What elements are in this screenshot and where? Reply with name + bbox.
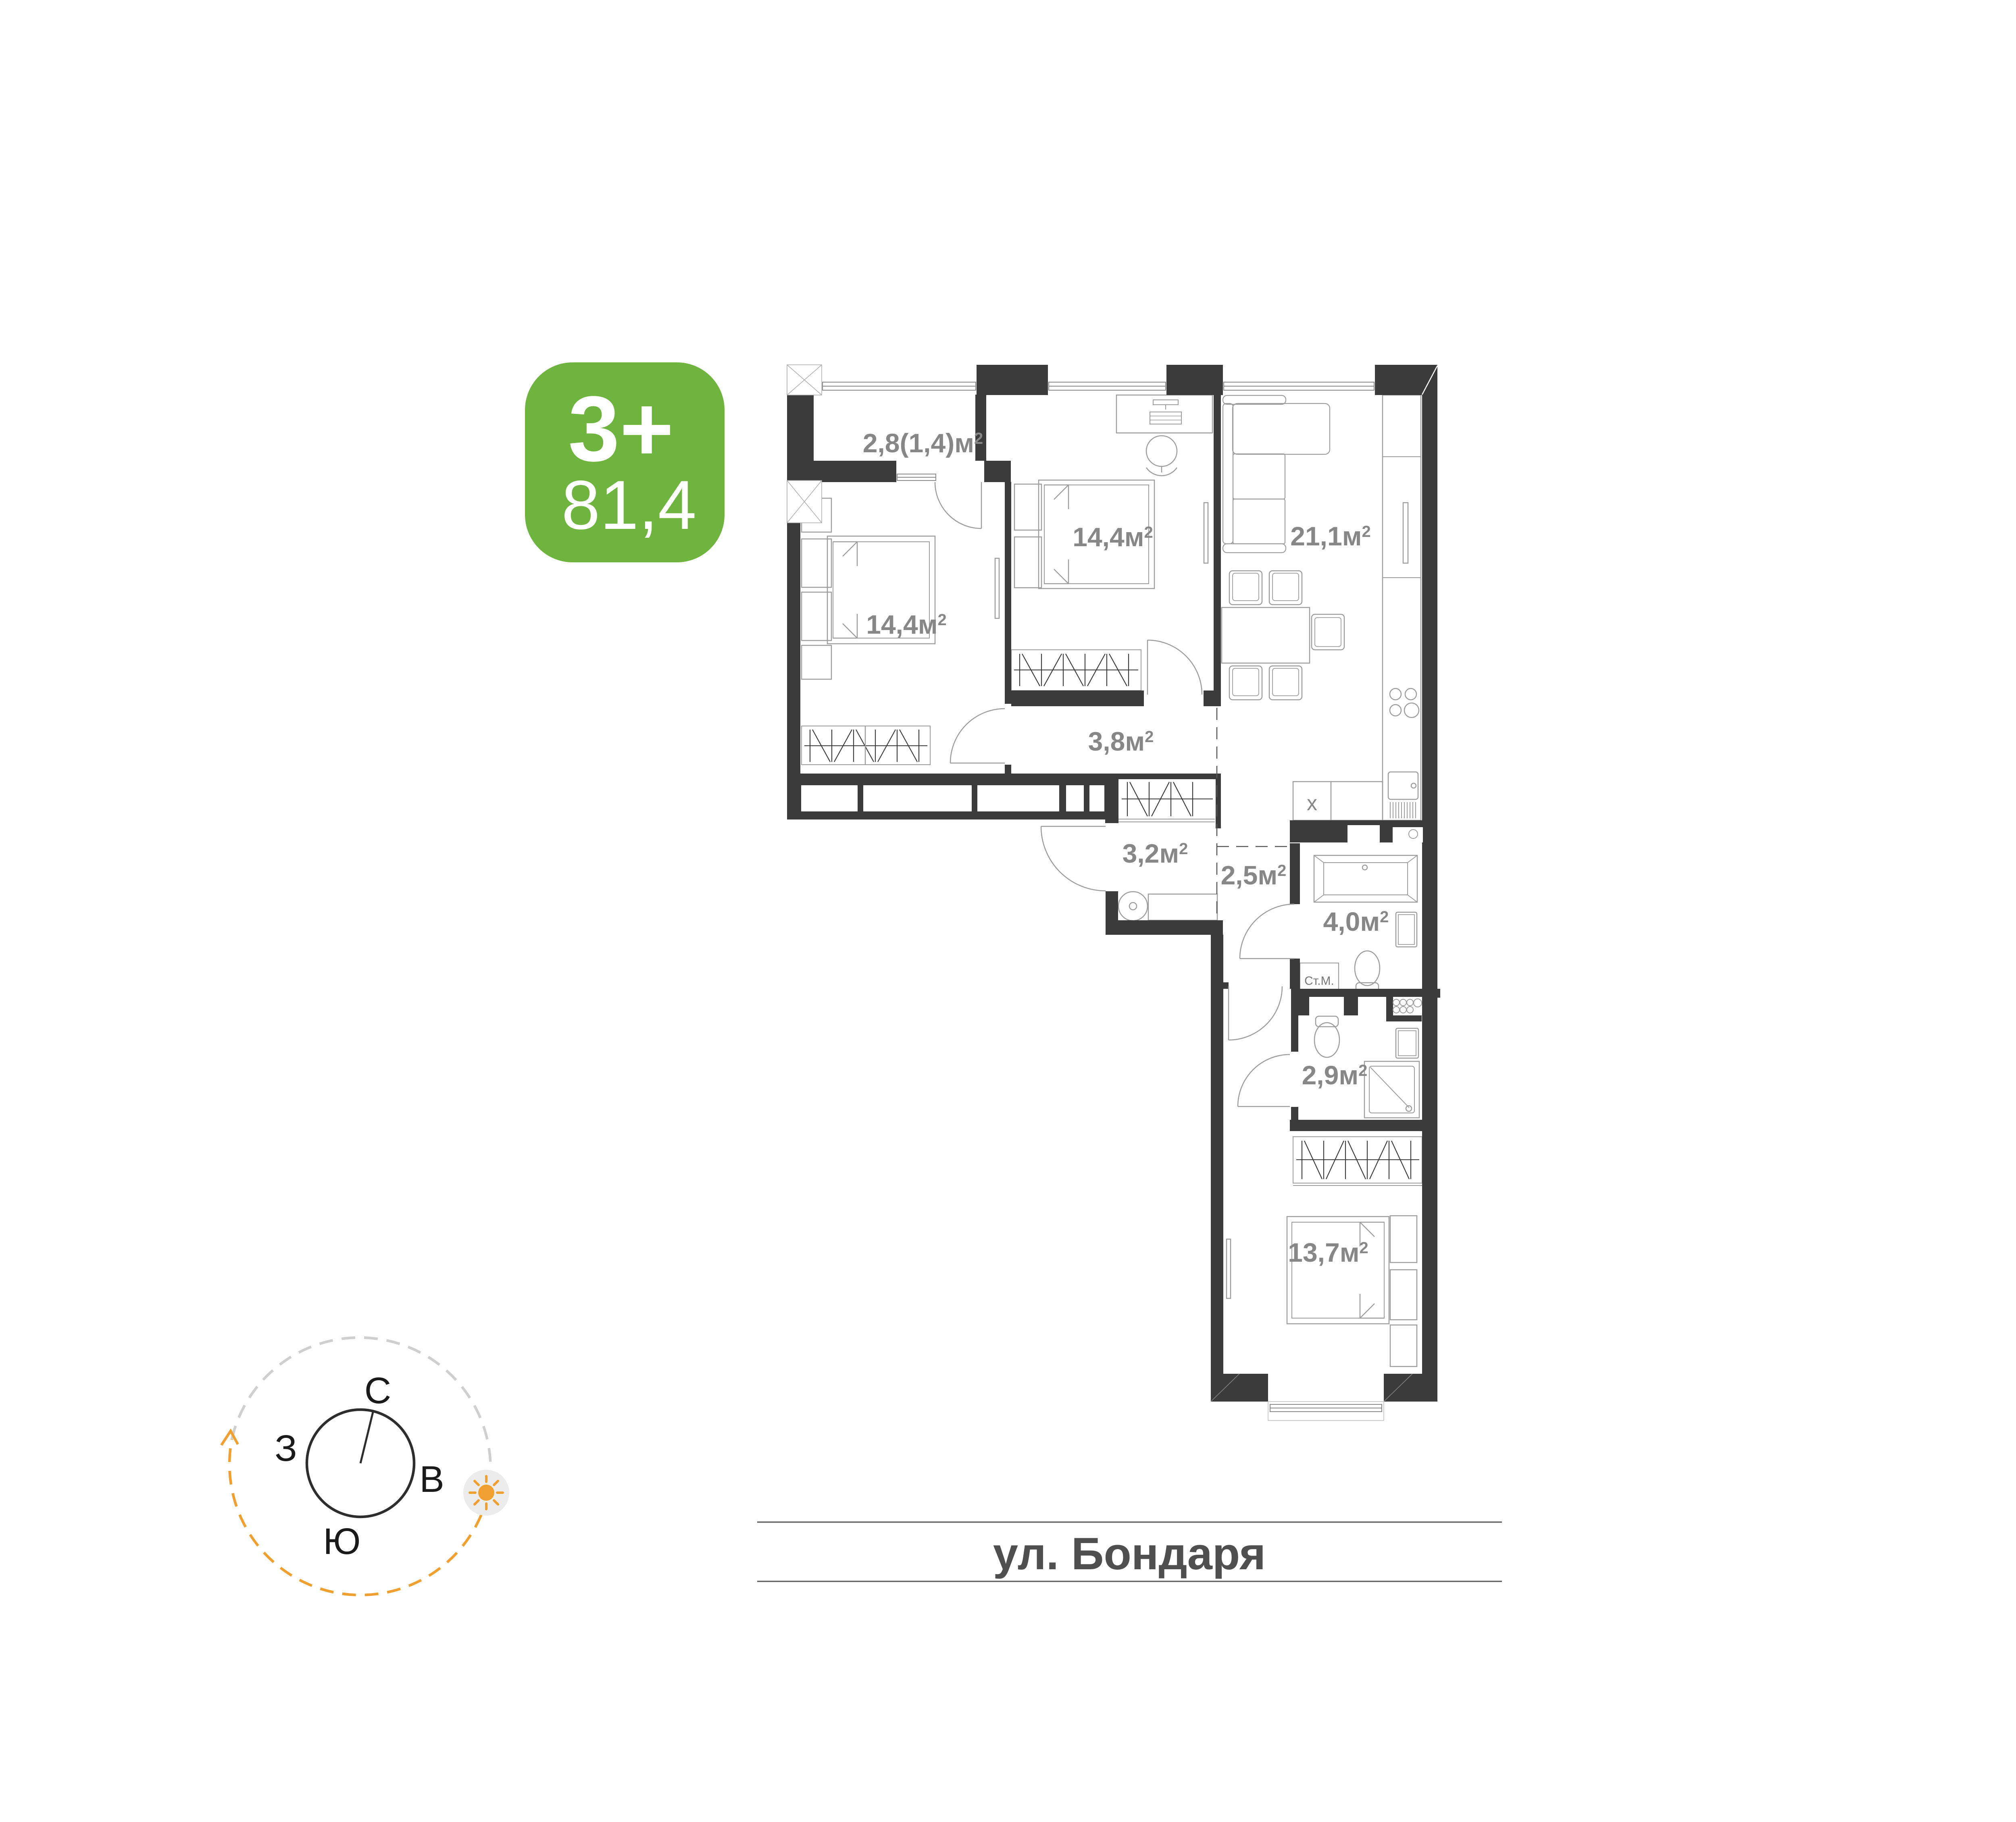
- svg-text:ул. Бондаря: ул. Бондаря: [993, 1529, 1266, 1579]
- svg-text:x: x: [1307, 792, 1317, 815]
- svg-text:14,4м2: 14,4м2: [866, 609, 947, 639]
- svg-text:С: С: [364, 1370, 391, 1411]
- svg-text:14,4м2: 14,4м2: [1073, 522, 1153, 552]
- svg-text:Ю: Ю: [323, 1521, 361, 1562]
- svg-text:81,4: 81,4: [562, 466, 697, 544]
- svg-text:13,7м2: 13,7м2: [1288, 1238, 1368, 1267]
- svg-text:3+: 3+: [568, 377, 674, 480]
- svg-text:В: В: [419, 1459, 444, 1500]
- svg-text:3,2м2: 3,2м2: [1123, 838, 1188, 868]
- svg-text:2,8(1,4)м2: 2,8(1,4)м2: [863, 428, 983, 458]
- svg-text:4,0м2: 4,0м2: [1323, 907, 1389, 936]
- svg-text:З: З: [275, 1428, 297, 1469]
- svg-text:2,5м2: 2,5м2: [1221, 860, 1287, 890]
- svg-text:21,1м2: 21,1м2: [1290, 521, 1371, 551]
- svg-text:2,9м2: 2,9м2: [1302, 1060, 1368, 1090]
- svg-text:Ст.М.: Ст.М.: [1304, 974, 1334, 988]
- svg-text:3,8м2: 3,8м2: [1088, 726, 1154, 756]
